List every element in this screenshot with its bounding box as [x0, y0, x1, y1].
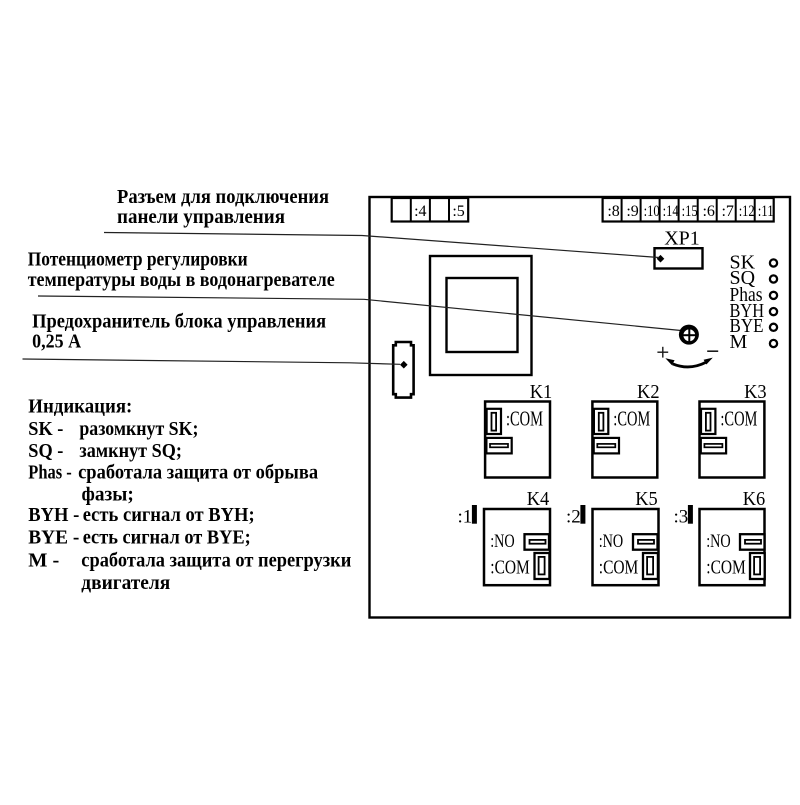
- svg-text::11: :11: [758, 203, 774, 220]
- svg-text::COM: :COM: [490, 557, 530, 579]
- svg-text:двигателя: двигателя: [81, 572, 170, 594]
- svg-text:K3: K3: [744, 381, 767, 403]
- svg-text:замкнут SQ;: замкнут SQ;: [79, 440, 181, 462]
- svg-text:K2: K2: [637, 381, 660, 403]
- svg-text::9: :9: [626, 203, 638, 220]
- svg-text::12: :12: [739, 203, 755, 220]
- svg-text:есть сигнал от BYH;: есть сигнал от BYH;: [83, 504, 255, 526]
- svg-text::COM: :COM: [599, 557, 639, 579]
- svg-text:BYH -: BYH -: [28, 504, 79, 526]
- svg-text:сработала защита от обрыва: сработала защита от обрыва: [78, 462, 318, 484]
- svg-text::1: :1: [458, 507, 473, 528]
- svg-text:M -: M -: [28, 549, 59, 571]
- svg-text:K5: K5: [635, 488, 658, 510]
- svg-text::5: :5: [452, 203, 464, 220]
- svg-text:Потенциометр регулировки: Потенциометр регулировки: [28, 249, 248, 271]
- svg-text::7: :7: [721, 203, 733, 220]
- svg-text:фазы;: фазы;: [82, 483, 134, 505]
- svg-text:M: M: [730, 331, 748, 353]
- svg-text:разомкнут SK;: разомкнут SK;: [79, 418, 198, 440]
- svg-text::15: :15: [682, 203, 698, 220]
- svg-text::NO: :NO: [706, 532, 731, 552]
- svg-text:SQ -: SQ -: [28, 440, 63, 462]
- svg-text::COM: :COM: [706, 557, 746, 579]
- svg-text::8: :8: [607, 203, 619, 220]
- svg-text:температуры воды в водонагрева: температуры воды в водонагревателе: [28, 269, 335, 291]
- svg-text:K6: K6: [743, 488, 766, 510]
- svg-text:сработала защита от перегрузки: сработала защита от перегрузки: [81, 549, 351, 571]
- svg-text::NO: :NO: [490, 532, 515, 552]
- svg-text::COM: :COM: [720, 407, 757, 431]
- svg-text:Предохранитель блока управлени: Предохранитель блока управления: [32, 311, 326, 333]
- svg-text:K4: K4: [527, 488, 550, 510]
- svg-text::NO: :NO: [599, 532, 624, 552]
- svg-text:Phas -: Phas -: [28, 462, 72, 484]
- svg-text:панели управления: панели управления: [117, 206, 285, 228]
- svg-text::COM: :COM: [506, 407, 543, 431]
- svg-text:SK -: SK -: [28, 418, 63, 440]
- svg-text::3: :3: [674, 507, 689, 528]
- svg-text::4: :4: [414, 203, 426, 220]
- svg-text:K1: K1: [530, 381, 553, 403]
- svg-text:Индикация:: Индикация:: [28, 396, 132, 418]
- svg-text::6: :6: [702, 203, 714, 220]
- svg-text:0,25 А: 0,25 А: [32, 330, 81, 352]
- svg-text:BYE -: BYE -: [28, 526, 79, 548]
- svg-text::10: :10: [644, 203, 660, 220]
- svg-text::2: :2: [566, 507, 581, 528]
- svg-text:XP1: XP1: [664, 228, 700, 250]
- svg-text::14: :14: [663, 203, 679, 220]
- svg-text::COM: :COM: [613, 407, 650, 431]
- svg-text:есть сигнал от BYE;: есть сигнал от BYE;: [83, 526, 251, 548]
